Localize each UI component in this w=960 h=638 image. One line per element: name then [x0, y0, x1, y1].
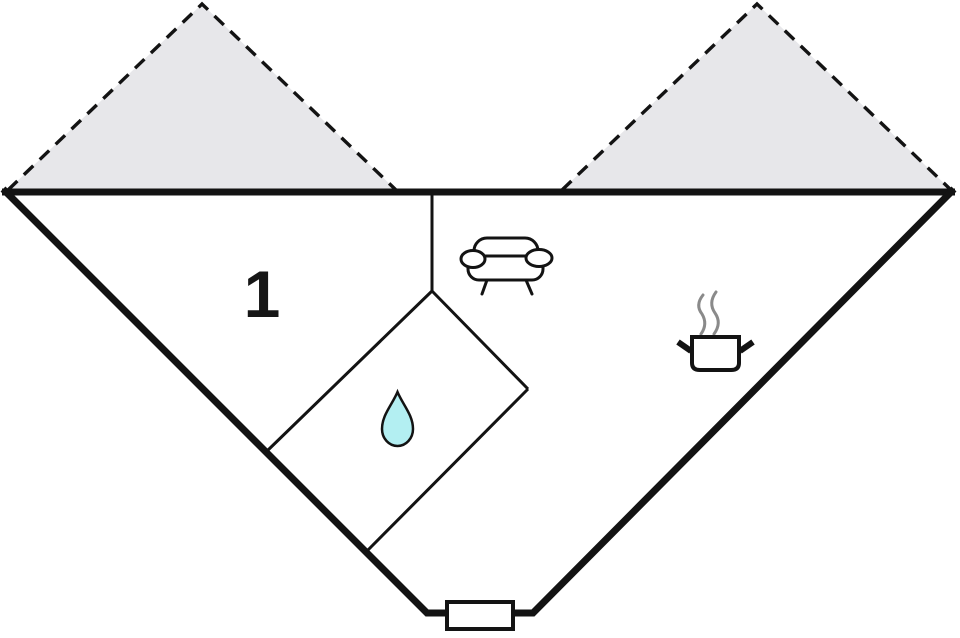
sofa-icon	[461, 238, 552, 294]
steam-icon	[712, 292, 719, 334]
bathroom-wall-upper-right	[432, 291, 528, 389]
outer-wall-right	[511, 189, 954, 613]
steam-icon	[699, 295, 705, 334]
cooking-pot-icon	[678, 292, 753, 370]
roof-overhang-right-fill	[562, 4, 951, 190]
entrance-door	[447, 602, 513, 629]
roof-overhang-right	[562, 4, 951, 190]
outer-wall-left	[3, 189, 449, 613]
roof-overhang-left-fill	[8, 4, 396, 190]
water-drop-icon	[382, 392, 413, 446]
room-number-label: 1	[244, 257, 281, 331]
floor-plan: 1	[0, 0, 960, 638]
roof-overhang-left	[8, 4, 396, 190]
pot-body	[692, 337, 739, 370]
pot-handle-left	[678, 342, 691, 351]
pot-handle-right	[740, 342, 753, 351]
